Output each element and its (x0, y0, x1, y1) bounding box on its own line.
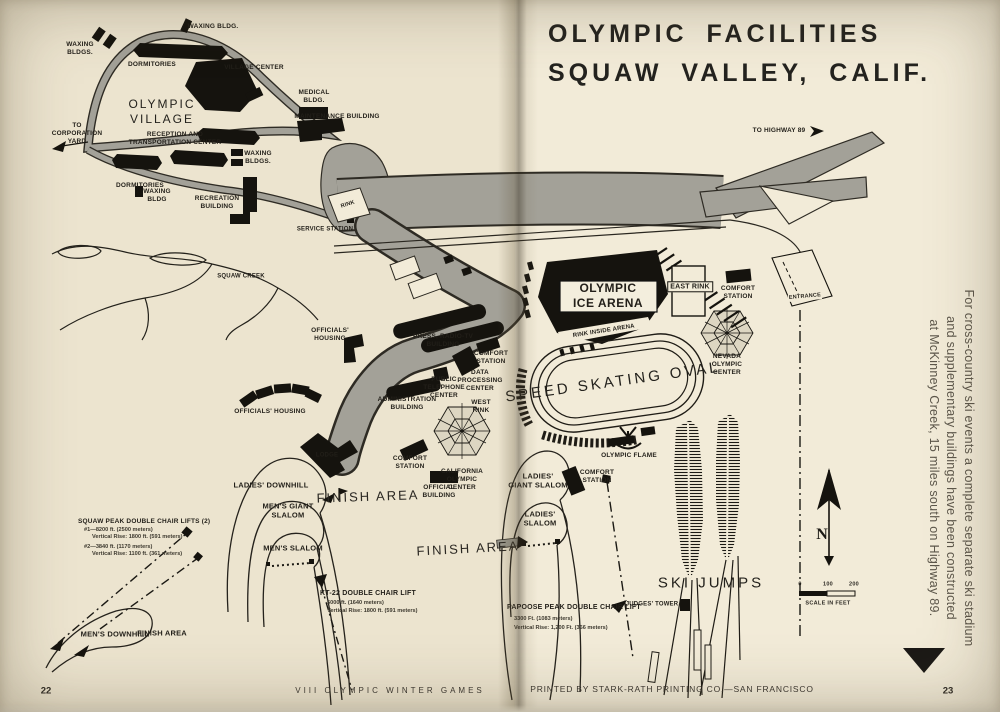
page-number-right: 23 (943, 686, 954, 696)
squaw-creek-lines (52, 245, 318, 340)
label-waxing-bldgs-nw: WAXING BLDGS. (66, 41, 94, 57)
label-officials-housing-lower: OFFICIALS' HOUSING (234, 408, 306, 416)
side-note: For cross-country ski events a complete … (923, 288, 977, 648)
label-maintenance-building: MAINTENANCE BUILDING (294, 113, 379, 121)
side-note-line1: For cross-country ski events a complete … (960, 288, 978, 648)
book-spread-map: WAXING BLDGS. WAXING BLDG. DORMITORIES V… (0, 0, 1000, 712)
label-judges-tower: JUDGES' TOWER (626, 601, 679, 609)
label-kt22-l1: 5000 ft. (1640 meters) (327, 600, 384, 607)
label-village-center: VILLAGE CENTER (224, 64, 284, 72)
label-finish-area-downhill: FINISH AREA (137, 628, 187, 637)
scale-tick-100: 100 (823, 582, 833, 589)
scale-tick-0: 0 (798, 582, 801, 589)
label-squaw-peak-title: SQUAW PEAK DOUBLE CHAIR LIFTS (2) (78, 518, 210, 526)
label-comfort-station-slalom: COMFORT STATION (580, 469, 614, 485)
label-data-processing-center: DATA PROCESSING CENTER (457, 369, 502, 393)
side-note-line3: at McKinney Creek, 15 miles south on Hig… (925, 288, 943, 648)
north-arrow-icon (817, 468, 841, 566)
label-dormitories-top: DORMITORIES (128, 61, 176, 69)
label-olympic-village: OLYMPIC VILLAGE (128, 97, 195, 127)
label-mens-giant-slalom: MEN'S GIANT SLALOM (262, 502, 313, 521)
page-title-line2: SQUAW VALLEY, CALIF. (548, 61, 931, 86)
label-service-station: SERVICE STATION (297, 226, 353, 234)
label-west-rink: WEST RINK (471, 399, 491, 415)
label-administration-building: ADMINISTRATION BUILDING (378, 396, 437, 412)
label-squaw-peak-l4: Vertical Rise: 1100 ft. (361 meters) (92, 551, 182, 558)
scale-bar (799, 591, 855, 596)
side-note-line2: and supplementary buildings have been co… (942, 288, 960, 648)
label-squaw-peak-l1: #1—8200 ft. (2500 meters) (84, 527, 153, 534)
scale-caption: SCALE IN FEET (805, 601, 850, 608)
label-olympic-ice-arena: OLYMPIC ICE ARENA (573, 281, 643, 311)
label-waxing-bldg-sw: WAXING BLDG (143, 188, 171, 204)
label-officials-housing-upper: OFFICIALS' HOUSING (311, 327, 349, 343)
label-squaw-creek: SQUAW CREEK (217, 273, 265, 281)
label-to-highway-89: TO HIGHWAY 89 (753, 127, 806, 135)
white-building-outline-2 (408, 273, 442, 298)
label-squaw-peak-l2: Vertical Rise: 1800 ft. (591 meters) (92, 534, 182, 541)
label-lodge: LODGE (316, 452, 338, 460)
label-medical-bldg: MEDICAL BLDG. (298, 89, 329, 105)
label-east-rink: EAST RINK (667, 281, 713, 292)
label-ladies-downhill: LADIES' DOWNHILL (234, 480, 309, 489)
label-to-corporation-yard: TO CORPORATION YARD (52, 122, 102, 146)
label-waxing-bldg-top: WAXING BLDG. (188, 23, 239, 31)
page-gutter (498, 0, 538, 712)
label-squaw-peak-l3: #2—3840 ft. (1170 meters) (84, 544, 152, 551)
scale-tick-200: 200 (849, 582, 859, 589)
compass-north-label: N (816, 527, 828, 543)
page-title-line1: OLYMPIC FACILITIES (548, 22, 881, 47)
label-mens-slalom: MEN'S SLALOM (263, 543, 323, 552)
label-olympic-flame: OLYMPIC FLAME (601, 452, 657, 460)
label-reception-center: RECEPTION AND TRANSPORTATION CENTER (129, 131, 221, 147)
label-recreation-building: RECREATION BUILDING (195, 195, 240, 211)
label-comfort-station-lodge: COMFORT STATION (393, 455, 427, 471)
label-comfort-station-east: COMFORT STATION (721, 285, 755, 301)
page-turn-arrow-icon (903, 648, 945, 673)
page-bottom-edge (0, 705, 1000, 712)
label-press-radio-tv: PRESS, RADIO-TV BUILDING (413, 333, 473, 349)
label-kt22-title: KT-22 DOUBLE CHAIR LIFT (320, 590, 416, 599)
footer-right-text: PRINTED BY STARK-RATH PRINTING CO.—SAN F… (530, 685, 814, 694)
comfort-station-east-building (725, 269, 751, 284)
nevada-olympic-center-dome (701, 307, 753, 359)
label-ski-jumps: SKI JUMPS (658, 575, 764, 594)
page-number-left: 22 (41, 686, 52, 696)
label-waxing-bldgs-mid: WAXING BLDGS. (244, 150, 272, 166)
label-official-building: OFFICIAL BUILDING (422, 484, 455, 500)
footer-left-text: VIII OLYMPIC WINTER GAMES (295, 687, 485, 695)
label-kt22-l2: Vertical Rise: 1800 ft. (591 meters) (327, 608, 417, 615)
